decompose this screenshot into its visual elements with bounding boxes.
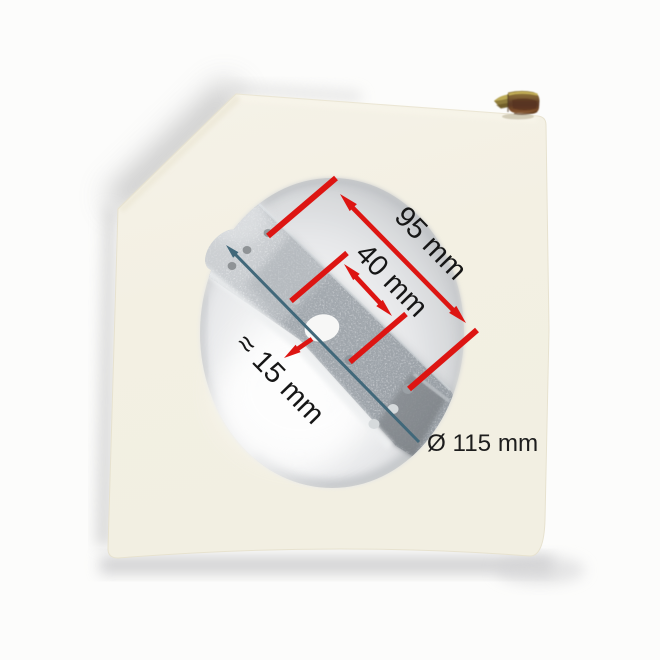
svg-text:Ø 115 mm: Ø 115 mm — [427, 430, 538, 457]
